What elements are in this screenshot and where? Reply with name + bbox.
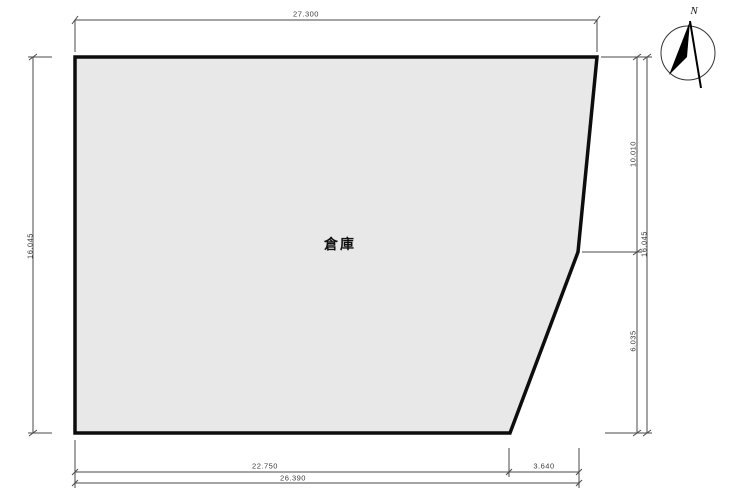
dim-label-right-upper: 10.010	[629, 141, 637, 167]
north-arrow-icon	[661, 21, 715, 88]
dim-label-right-total: 16.045	[640, 231, 648, 257]
dim-label-top: 27.300	[293, 10, 319, 18]
dim-label-bottom-main: 22.750	[252, 462, 278, 470]
dim-label-right-lower: 6.035	[629, 330, 637, 351]
dim-label-bottom-slant: 3.640	[533, 462, 554, 470]
dimension-top	[72, 16, 600, 52]
site-plan-canvas: 27.300 16.045 10.010 6.035 16.045 22.750…	[0, 0, 750, 500]
site-plan-drawing	[0, 0, 750, 500]
dim-label-bottom-total: 26.390	[280, 474, 306, 482]
dimension-bottom	[72, 440, 582, 488]
building-name-label: 倉庫	[324, 234, 356, 254]
dim-label-left: 16.045	[26, 233, 34, 259]
north-letter-label: N	[690, 5, 697, 17]
